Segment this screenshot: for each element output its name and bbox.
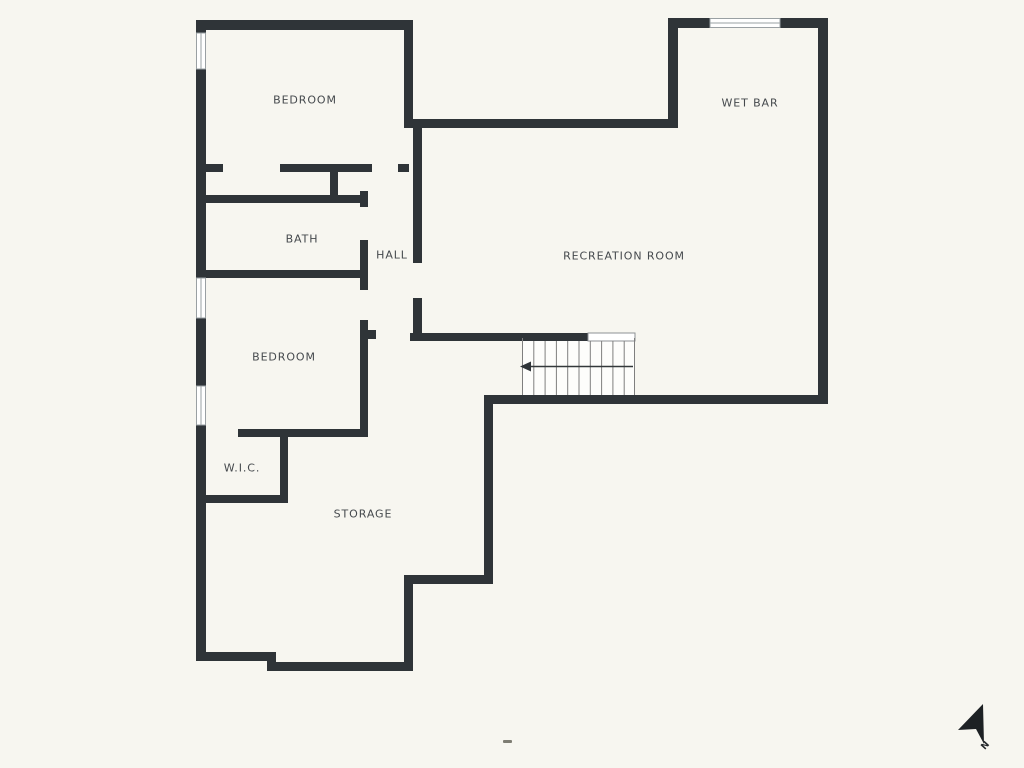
wall-left-seg1: [196, 20, 206, 34]
wall-bedroom1-right: [404, 20, 413, 128]
wall-left-seg4: [196, 424, 206, 661]
wall-bd2-bottom: [238, 429, 368, 437]
north-arrow: [958, 704, 984, 744]
wall-bath-top-cap: [360, 191, 368, 207]
room-label-storage: STORAGE: [334, 508, 393, 521]
stairs-landing-edge: [588, 333, 635, 341]
wall-bd2-right-nub: [368, 330, 376, 339]
floor-plan-canvas: BEDROOM WET BAR BATH HALL RECREATION ROO…: [0, 0, 1024, 768]
wall-bath-top: [197, 195, 368, 203]
wall-storage-right-upper: [484, 395, 493, 584]
wall-bd1-bottom-b: [280, 164, 372, 172]
room-label-bedroom-2: BEDROOM: [252, 351, 316, 364]
wall-bottom-left: [197, 652, 276, 661]
floor-plan-drawing: [0, 0, 1024, 768]
wall-stairs-top: [410, 333, 588, 341]
wall-wetbar-top-b: [780, 18, 828, 28]
wall-recroom-bottom: [484, 395, 828, 404]
wall-wic-bottom: [197, 495, 288, 503]
wall-recroom-top: [404, 119, 678, 128]
room-label-wet-bar: WET BAR: [721, 97, 778, 110]
wall-bath-bottom: [197, 270, 368, 278]
room-label-bedroom-1: BEDROOM: [273, 94, 337, 107]
wall-left-seg2: [196, 68, 206, 279]
room-label-recreation-room: RECREATION ROOM: [563, 250, 685, 263]
wall-bath-right: [360, 240, 368, 290]
interior-walls: [197, 124, 588, 503]
wall-left-seg3: [196, 317, 206, 387]
wall-right-outer: [818, 18, 828, 404]
north-arrow-icon: [958, 704, 984, 744]
wall-storage-step-h: [404, 575, 493, 584]
wall-hall-nub-top: [398, 164, 409, 172]
wall-bd1-bottom-a: [197, 164, 223, 172]
wall-storage-right-lower: [404, 575, 413, 671]
wall-top-bedroom1: [197, 20, 413, 30]
wall-hall-right-upper: [413, 124, 422, 263]
wall-wic-right: [280, 437, 288, 503]
room-label-bath: BATH: [286, 233, 319, 246]
room-label-wic: W.I.C.: [224, 462, 260, 475]
wall-wetbar-left: [668, 18, 678, 128]
windows: [197, 19, 781, 426]
wall-bottom: [267, 662, 413, 671]
exterior-walls: [196, 18, 828, 671]
room-label-hall: HALL: [376, 249, 408, 262]
wall-bd2-right: [360, 320, 368, 437]
stairs: [520, 333, 635, 395]
wall-hall-right-lower: [413, 298, 422, 338]
watermark-mark: [503, 740, 512, 743]
